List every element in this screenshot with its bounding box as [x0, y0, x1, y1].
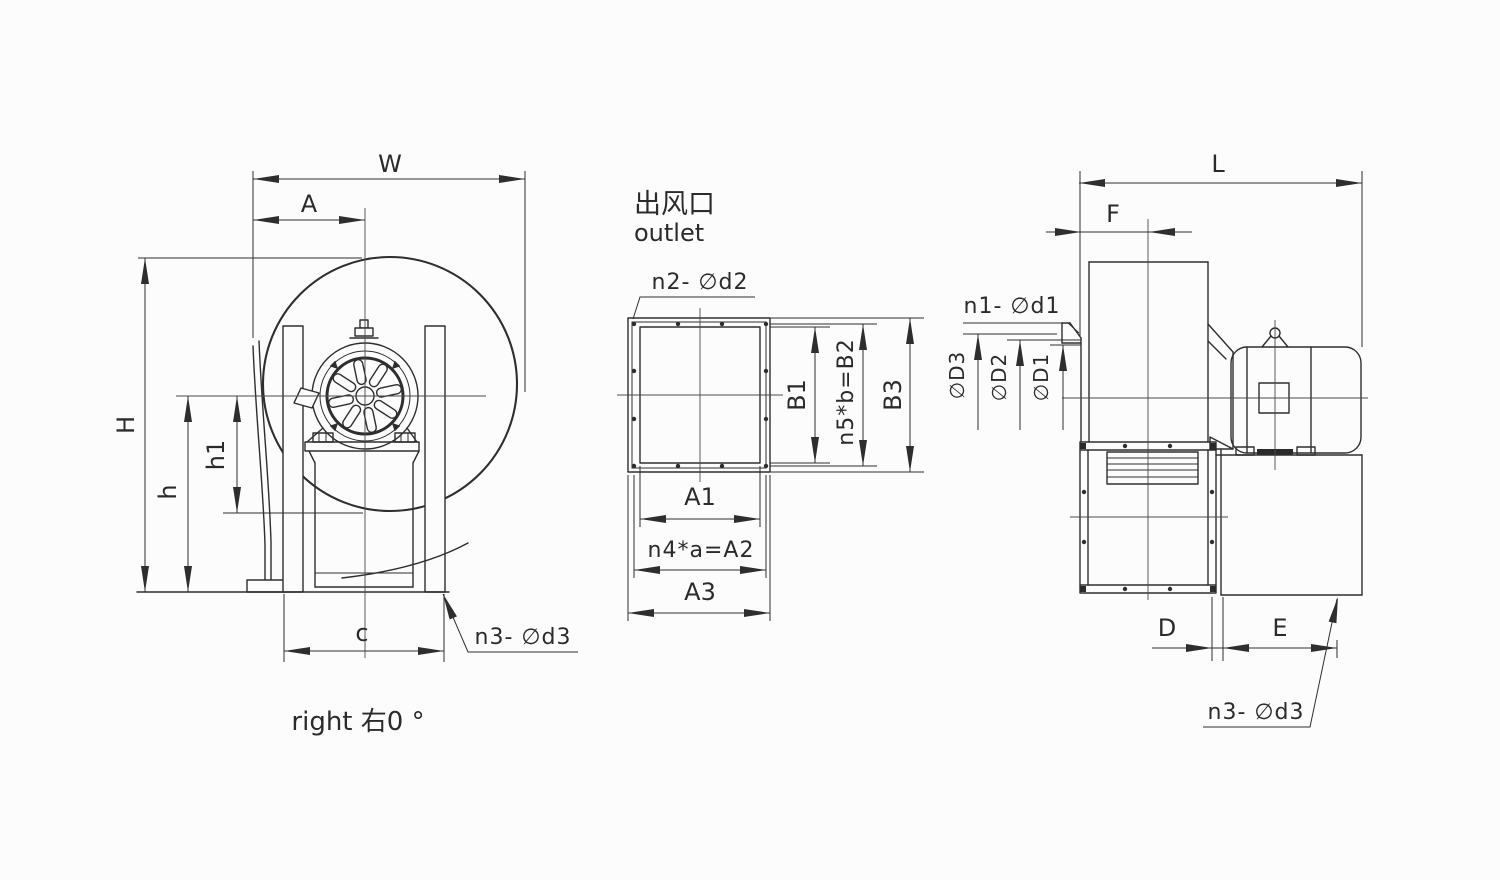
left-view-caption: right 右0 ° [291, 707, 424, 737]
support-post-right [425, 326, 445, 592]
dim-label-w: W [378, 150, 402, 178]
left-view-fan-front: W A H h h1 [112, 150, 578, 737]
side-view-fan-motor: L F n1- ∅d1 ∅D3 ∅D2 ∅D1 [945, 150, 1368, 727]
callout-label-n2: n2- ∅d2 [652, 270, 749, 295]
outlet-foot [247, 580, 285, 592]
dim-label-h-total: H [112, 416, 140, 434]
motor-body [1231, 347, 1361, 453]
dim-label-h1: h1 [202, 440, 230, 470]
callout-label-n3-left: n3- ∅d3 [475, 625, 572, 650]
outlet-a-dimensions: A1 n4*a=A2 A3 [628, 466, 770, 621]
dim-label-a: A [301, 190, 318, 218]
motor-bracket [1208, 324, 1233, 449]
dim-label-f: F [1106, 200, 1120, 228]
fan-dimension-drawing: W A H h h1 [0, 0, 1500, 880]
dim-label-l: L [1211, 150, 1225, 178]
side-view-dimensions: L F n1- ∅d1 ∅D3 ∅D2 ∅D1 [945, 150, 1362, 727]
dim-label-b1: B1 [783, 379, 811, 411]
louver-grille [1107, 452, 1198, 484]
inlet-ring [294, 320, 418, 449]
dim-label-h-axis: h [154, 484, 182, 499]
dim-label-a2: n4*a=A2 [648, 538, 755, 563]
drawing-canvas: W A H h h1 [0, 0, 1500, 880]
dim-label-e: E [1272, 614, 1287, 642]
dim-label-b2: n5*b=B2 [834, 338, 859, 445]
outlet-title-cn: 出风口 [634, 189, 715, 220]
dim-label-c: c [355, 619, 368, 647]
dim-label-a1: A1 [684, 483, 716, 511]
outlet-flange-view: 出风口 outlet n2- ∅d2 [617, 189, 924, 621]
dim-label-d: D [1158, 614, 1176, 642]
callout-label-n3-right: n3- ∅d3 [1208, 700, 1305, 725]
support-post-left [283, 326, 303, 592]
motor [1231, 328, 1361, 455]
callout-label-n1: n1- ∅d1 [964, 294, 1061, 319]
dim-label-d3: ∅D3 [945, 351, 969, 400]
dim-label-b3: B3 [879, 379, 907, 411]
discharge-duct [1089, 262, 1208, 442]
base-frame [1216, 450, 1362, 595]
outlet-title-en: outlet [634, 219, 704, 247]
dim-label-d1: ∅D1 [1029, 353, 1053, 402]
inlet-collar [1062, 323, 1081, 442]
outlet-b-dimensions: B1 n5*b=B2 B3 [770, 318, 924, 472]
dim-label-d2: ∅D2 [987, 353, 1011, 402]
dim-label-a3: A3 [684, 578, 716, 606]
